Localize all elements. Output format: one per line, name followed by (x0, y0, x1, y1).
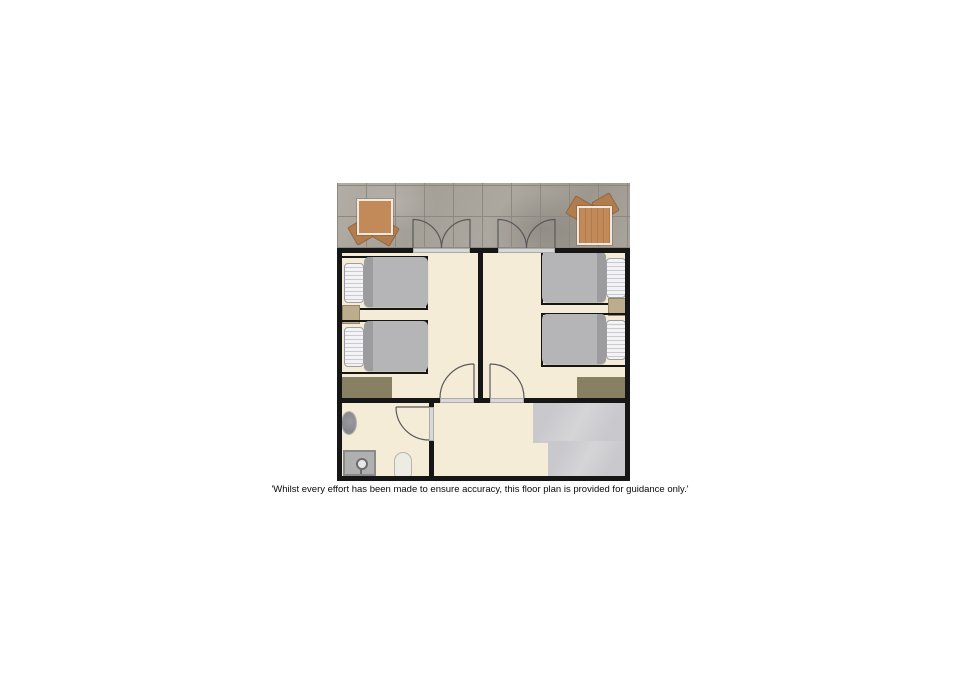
rug-icon (342, 377, 392, 398)
wall-top (470, 248, 498, 253)
rug-icon (577, 377, 625, 398)
bed-blanket (542, 314, 606, 364)
wall-left (337, 248, 342, 481)
door-threshold (440, 398, 474, 403)
blanket-fold (597, 252, 606, 302)
door-threshold (490, 398, 524, 403)
door-threshold (498, 248, 555, 253)
wall-top (337, 248, 413, 253)
shower-icon (343, 450, 376, 476)
pillow-icon (606, 258, 626, 298)
blanket-fold (364, 321, 373, 371)
wall-bathroom (429, 441, 434, 476)
gray-floor-area (548, 441, 625, 476)
shower-stem (360, 469, 362, 474)
wall-top (555, 248, 630, 253)
pillow-icon (344, 327, 364, 367)
wall-bottom (337, 476, 630, 481)
bed-blanket (364, 257, 428, 307)
pillow-icon (344, 263, 364, 303)
shower-head-icon (356, 458, 368, 470)
door-threshold (413, 248, 470, 253)
wall-right (625, 248, 630, 481)
wall-bedroom-bottom (524, 398, 630, 403)
disclaimer-text: 'Whilst every effort has been made to en… (0, 484, 960, 495)
floor-plan (337, 183, 630, 481)
gray-floor-area (533, 403, 625, 443)
wall-between-bedrooms (478, 248, 483, 403)
wall-bedroom-bottom (474, 398, 490, 403)
bed-blanket (542, 252, 606, 302)
blanket-fold (364, 257, 373, 307)
wall-bedroom-bottom (337, 398, 440, 403)
door-threshold (429, 407, 434, 441)
table-icon (577, 206, 612, 245)
table-icon (357, 199, 393, 235)
pillow-icon (606, 320, 626, 360)
bed-blanket (364, 321, 428, 371)
basin-icon (342, 412, 356, 434)
toilet-icon (394, 452, 412, 477)
blanket-fold (597, 314, 606, 364)
